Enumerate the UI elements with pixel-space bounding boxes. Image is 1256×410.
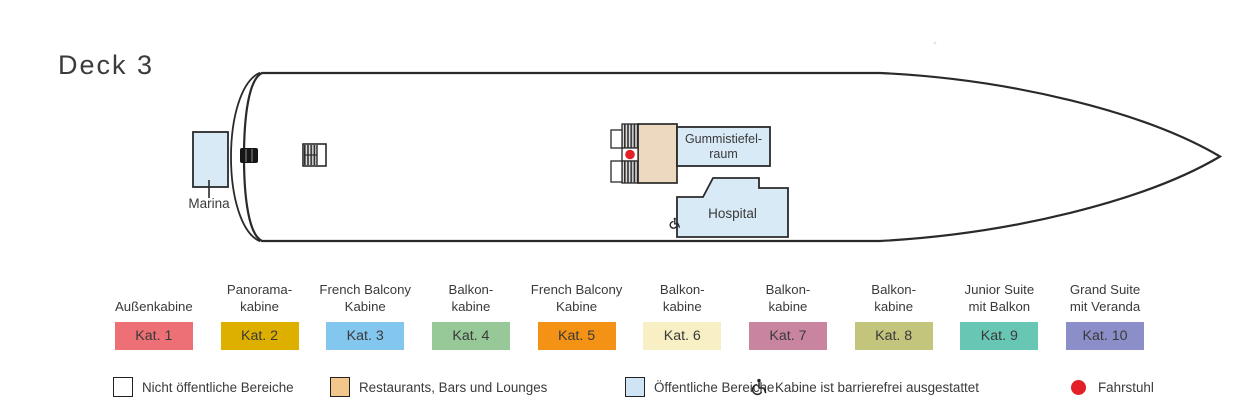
stairs-top <box>622 124 638 148</box>
category-label: Balkon- kabine <box>871 282 916 315</box>
legend-label: Kabine ist barrierefrei ausgestattet <box>775 380 979 395</box>
category-label: Außenkabine <box>115 299 193 315</box>
annex-cell-top <box>611 130 622 148</box>
legend-label: Restaurants, Bars und Lounges <box>359 380 547 395</box>
category-swatch-kat-6: Kat. 6 <box>643 322 721 350</box>
category-swatch-kat-2: Kat. 2 <box>221 322 299 350</box>
legend-label: Fahrstuhl <box>1098 380 1154 395</box>
category-kat-8: Balkon- kabine Kat. 8 <box>841 280 947 350</box>
category-swatch-kat-10: Kat. 10 <box>1066 322 1144 350</box>
category-kat-6: Balkon- kabine Kat. 6 <box>629 280 735 350</box>
category-legend: Außenkabine Kat. 1 Panorama- kabine Kat.… <box>101 280 1158 350</box>
category-swatch-kat-3: Kat. 3 <box>326 322 404 350</box>
category-swatch-kat-9: Kat. 9 <box>960 322 1038 350</box>
category-swatch-kat-1: Kat. 1 <box>115 322 193 350</box>
legend-label: Nicht öffentliche Bereiche <box>142 380 294 395</box>
gummistiefelraum-label: Gummistiefel- raum <box>677 127 770 166</box>
legend-item-elevator: Fahrstuhl <box>1071 376 1154 398</box>
non-public-swatch <box>113 377 133 397</box>
annex-cell-bottom <box>611 161 622 182</box>
legend-item-non-public: Nicht öffentliche Bereiche <box>113 376 294 398</box>
category-kat-1: Außenkabine Kat. 1 <box>101 280 207 350</box>
faint-speck <box>934 42 937 45</box>
elevator-dot-icon <box>1071 380 1086 395</box>
category-label: French Balcony Kabine <box>531 282 623 315</box>
category-kat-3: French Balcony Kabine Kat. 3 <box>312 280 418 350</box>
gummistiefelraum-label-line2: raum <box>709 147 737 162</box>
category-kat-2: Panorama- kabine Kat. 2 <box>207 280 313 350</box>
deck-plan-canvas: Deck 3 <box>0 0 1256 410</box>
category-label: Panorama- kabine <box>227 282 292 315</box>
category-kat-5: French Balcony Kabine Kat. 5 <box>524 280 630 350</box>
category-kat-9: Junior Suite mit Balkon Kat. 9 <box>947 280 1053 350</box>
gummistiefelraum-label-line1: Gummistiefel- <box>685 132 762 147</box>
category-swatch-kat-5: Kat. 5 <box>538 322 616 350</box>
wheelchair-icon <box>751 378 768 396</box>
legend-item-accessible: Kabine ist barrierefrei ausgestattet <box>751 376 979 398</box>
public-areas-swatch <box>625 377 645 397</box>
hospital-label: Hospital <box>677 206 788 221</box>
elevator-dot-map <box>625 150 635 160</box>
marina-label: Marina <box>177 196 241 211</box>
stairs-bottom <box>622 161 638 183</box>
marina-room <box>193 132 228 187</box>
category-kat-10: Grand Suite mit Veranda Kat. 10 <box>1052 280 1158 350</box>
category-label: Grand Suite mit Veranda <box>1070 282 1140 315</box>
category-kat-4: Balkon- kabine Kat. 4 <box>418 280 524 350</box>
category-swatch-kat-7: Kat. 7 <box>749 322 827 350</box>
legend-item-restaurants: Restaurants, Bars und Lounges <box>330 376 547 398</box>
restaurant-area <box>638 124 677 183</box>
category-label: Junior Suite mit Balkon <box>965 282 1035 315</box>
category-label: French Balcony Kabine <box>319 282 411 315</box>
stairwell-icon <box>303 144 326 166</box>
restaurants-swatch <box>330 377 350 397</box>
category-label: Balkon- kabine <box>449 282 494 315</box>
category-label: Balkon- kabine <box>660 282 705 315</box>
tender-block <box>240 148 258 163</box>
category-swatch-kat-4: Kat. 4 <box>432 322 510 350</box>
category-label: Balkon- kabine <box>766 282 811 315</box>
category-swatch-kat-8: Kat. 8 <box>855 322 933 350</box>
category-kat-7: Balkon- kabine Kat. 7 <box>735 280 841 350</box>
